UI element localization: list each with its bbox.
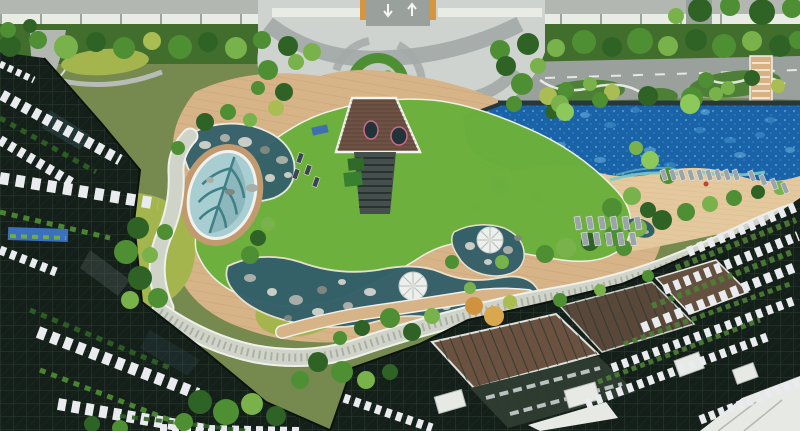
tree-canopy	[629, 141, 643, 155]
photo-canvas	[0, 0, 800, 431]
tree-canopy	[602, 37, 622, 57]
tree-canopy	[583, 77, 597, 91]
dome	[477, 227, 503, 253]
pond-rock	[514, 235, 522, 241]
tree-canopy	[642, 270, 654, 282]
pond-rock	[199, 141, 211, 149]
tree-canopy	[572, 30, 596, 54]
gate-road	[366, 0, 430, 26]
pool-sparkle	[755, 132, 765, 138]
tree-canopy	[769, 35, 791, 57]
tree-canopy	[698, 72, 714, 88]
roof-opening	[364, 121, 378, 139]
tree-canopy	[225, 37, 247, 59]
tree-canopy	[641, 151, 659, 169]
pool-umbrella	[704, 182, 709, 187]
tree-canopy	[0, 35, 21, 57]
pool-sparkle	[580, 112, 590, 118]
tree-canopy	[744, 70, 760, 86]
pond-rock	[503, 246, 513, 254]
tree-canopy	[23, 19, 37, 33]
pond-rock	[246, 184, 258, 192]
gate-wall-left	[272, 8, 360, 17]
pond-rock	[484, 259, 492, 265]
tree-canopy	[495, 255, 509, 269]
pond-rock	[276, 156, 288, 164]
tree-canopy	[54, 35, 78, 59]
tree-canopy	[250, 230, 266, 246]
dome	[399, 272, 427, 300]
tree-canopy	[403, 323, 421, 341]
tree-canopy	[113, 37, 135, 59]
tree-canopy	[261, 217, 275, 231]
tree-canopy	[278, 36, 298, 56]
pond-rock	[465, 242, 475, 250]
tree-canopy	[465, 297, 483, 315]
pond-rock	[244, 274, 256, 282]
pond-rock	[284, 172, 292, 178]
tree-canopy	[241, 246, 259, 264]
tree-canopy	[354, 320, 370, 336]
pool-sparkle	[594, 157, 606, 163]
tree-canopy	[751, 185, 765, 199]
tree-canopy	[121, 291, 139, 309]
tree-canopy	[658, 36, 678, 56]
terrace-mural	[8, 227, 68, 242]
tree-canopy	[288, 54, 304, 70]
tree-canopy	[627, 28, 653, 54]
tree-canopy	[556, 238, 576, 258]
tree-canopy	[213, 399, 239, 425]
tree-canopy	[114, 240, 138, 264]
tree-canopy	[517, 33, 539, 55]
tree-canopy	[143, 32, 161, 50]
tree-canopy	[742, 31, 762, 51]
tree-canopy	[127, 217, 149, 239]
tree-canopy	[506, 96, 522, 112]
tree-canopy	[142, 247, 158, 263]
tree-canopy	[0, 22, 16, 38]
pool-sparkle	[724, 137, 736, 143]
tree-canopy	[749, 0, 775, 25]
tree-canopy	[702, 196, 718, 212]
tree-canopy	[380, 308, 400, 328]
tree-canopy	[547, 39, 565, 57]
pond-rock	[364, 288, 376, 296]
tree-canopy	[530, 58, 546, 74]
gate-wall-right	[438, 8, 542, 17]
pond-rock	[238, 137, 252, 147]
tree-canopy	[712, 34, 736, 58]
tree-canopy	[721, 81, 735, 95]
tree-canopy	[685, 29, 707, 51]
tree-canopy	[220, 104, 236, 120]
pool-sparkle	[694, 127, 706, 133]
tree-canopy	[594, 284, 606, 296]
tree-canopy	[484, 306, 504, 326]
pond-rock	[225, 189, 235, 195]
tree-canopy	[424, 308, 440, 324]
hedge-box	[343, 171, 362, 187]
tree-canopy	[253, 31, 271, 49]
tree-canopy	[86, 32, 106, 52]
tree-canopy	[464, 282, 476, 294]
tree-canopy	[556, 103, 574, 121]
tree-canopy	[496, 56, 516, 76]
tree-canopy	[29, 31, 47, 49]
pond-rock	[289, 295, 303, 305]
tree-canopy	[445, 255, 459, 269]
tree-canopy	[503, 295, 517, 309]
pond-rock	[267, 288, 277, 296]
tree-canopy	[333, 331, 347, 345]
tree-canopy	[258, 60, 278, 80]
tree-canopy	[148, 288, 168, 308]
pool-sparkle	[734, 152, 746, 158]
pond-rock	[284, 315, 292, 321]
pool-sparkle	[764, 117, 776, 123]
tree-canopy	[640, 202, 656, 218]
tree-canopy	[382, 364, 398, 380]
tree-canopy	[171, 141, 185, 155]
tree-canopy	[303, 43, 321, 61]
tree-canopy	[553, 293, 567, 307]
tree-canopy	[168, 35, 192, 59]
gate-pillar	[430, 0, 436, 20]
tree-canopy	[243, 113, 257, 127]
tree-canopy	[709, 87, 723, 101]
tree-canopy	[357, 371, 375, 389]
tree-canopy	[196, 113, 214, 131]
tree-canopy	[275, 83, 293, 101]
tree-canopy	[726, 190, 742, 206]
tree-canopy	[157, 224, 173, 240]
tree-canopy	[331, 361, 353, 383]
tree-canopy	[268, 100, 284, 116]
roof-opening	[391, 127, 407, 145]
tree-canopy	[668, 8, 684, 24]
tree-canopy	[771, 79, 785, 93]
tree-canopy	[680, 94, 700, 114]
tree-canopy	[198, 32, 218, 52]
tree-canopy	[128, 266, 152, 290]
tree-canopy	[188, 390, 212, 414]
tree-canopy	[291, 371, 309, 389]
pond-rock	[260, 146, 270, 154]
tree-canopy	[511, 73, 533, 95]
pond-rock	[220, 134, 230, 142]
tree-canopy	[592, 92, 608, 108]
tree-canopy	[602, 198, 622, 218]
pool-sparkle	[700, 109, 710, 115]
pool-sparkle	[785, 147, 795, 153]
tree-canopy	[175, 413, 193, 431]
pond-rock	[206, 177, 214, 183]
pond-rock	[317, 286, 327, 294]
tree-canopy	[241, 393, 263, 415]
aerial-photo-residential-garden	[0, 0, 800, 431]
pond-rock	[338, 279, 346, 285]
gate-pillar	[360, 0, 366, 20]
tree-canopy	[677, 203, 695, 221]
tree-canopy	[308, 352, 328, 372]
tree-canopy	[536, 245, 554, 263]
pool-sparkle	[604, 122, 616, 128]
tree-canopy	[638, 86, 658, 106]
hedge-box	[347, 157, 364, 171]
tree-canopy	[251, 81, 265, 95]
tree-canopy	[266, 406, 286, 426]
pool-sparkle	[630, 107, 640, 113]
tree-canopy	[623, 187, 641, 205]
pond-rock	[265, 174, 275, 182]
